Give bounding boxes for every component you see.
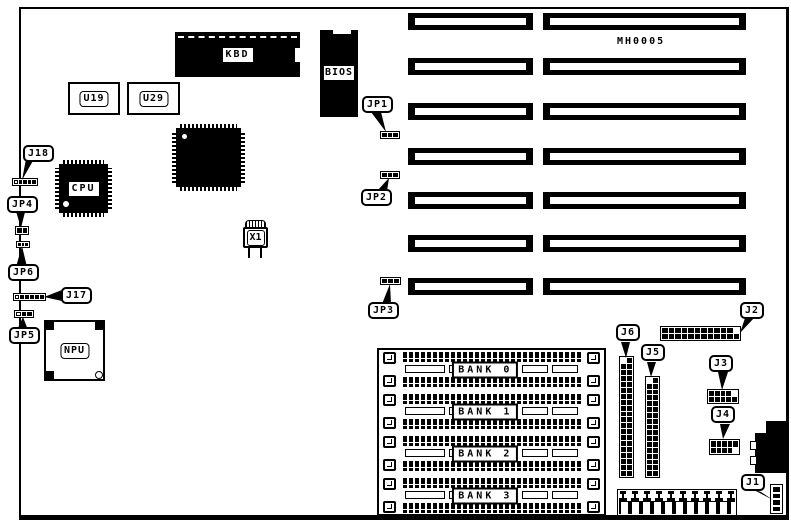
kbd-notch bbox=[295, 48, 300, 62]
jp2-callout-label: JP2 bbox=[361, 189, 392, 206]
bios-chip: BIOS bbox=[320, 30, 358, 117]
jp3-callout-label: JP3 bbox=[368, 302, 399, 319]
motherboard-diagram: MH0005 KBD BIOS U19 U29 CPU bbox=[0, 0, 791, 527]
jp5-callout-label: JP5 bbox=[9, 327, 40, 344]
connector-pin bbox=[621, 423, 626, 428]
simm-latch-icon bbox=[587, 436, 600, 448]
connector-pin bbox=[647, 390, 652, 395]
connector-pin bbox=[647, 413, 652, 418]
connector-pin bbox=[688, 334, 694, 339]
connector-pin bbox=[728, 448, 733, 454]
jp2-jumper bbox=[380, 171, 400, 179]
connector-pin bbox=[647, 401, 652, 406]
chipset-pins-right bbox=[241, 132, 245, 183]
connector-pin bbox=[701, 334, 707, 339]
crystal-leg bbox=[260, 248, 262, 258]
cpu-pins-bottom bbox=[63, 213, 104, 217]
isa-slot-segment-short bbox=[408, 192, 533, 209]
simm-latch-icon bbox=[587, 417, 600, 429]
simm-chip-box bbox=[552, 407, 578, 415]
connector-pin bbox=[653, 465, 658, 470]
connector-pin bbox=[653, 430, 658, 435]
simm-latch-icon bbox=[383, 501, 396, 513]
connector-pin bbox=[669, 334, 675, 339]
simm-latch-icon bbox=[383, 417, 396, 429]
jumper-pin bbox=[388, 173, 393, 177]
connector-pin bbox=[621, 417, 626, 422]
connector-pin bbox=[621, 465, 626, 470]
connector-pin bbox=[627, 417, 632, 422]
connector-pin bbox=[662, 334, 668, 339]
jumper-pin bbox=[35, 295, 39, 299]
power-socket-row bbox=[619, 501, 735, 514]
j2-callout-label: J2 bbox=[740, 302, 764, 319]
keyboard-din-connector bbox=[755, 433, 788, 473]
connector-pin bbox=[627, 406, 632, 411]
connector-pin bbox=[621, 406, 626, 411]
connector-pin bbox=[627, 459, 632, 464]
connector-pin bbox=[627, 423, 632, 428]
j3-connector bbox=[707, 389, 739, 404]
chipset-pins-bottom bbox=[180, 187, 237, 191]
isa-slot-segment-long bbox=[543, 103, 746, 120]
connector-pin bbox=[647, 419, 652, 424]
simm-chip-box bbox=[552, 449, 578, 457]
isa-slot-segment-long bbox=[543, 278, 746, 295]
connector-pin bbox=[621, 447, 626, 452]
crystal-x1: X1 bbox=[243, 227, 268, 248]
connector-pin bbox=[627, 471, 632, 476]
jumper-pin bbox=[18, 243, 21, 246]
connector-pin bbox=[653, 471, 658, 476]
memory-bank-1: BANK 1 bbox=[403, 394, 582, 429]
simm-chip-box bbox=[522, 449, 548, 457]
connector-pin bbox=[653, 378, 658, 383]
simm-latch-icon bbox=[587, 501, 600, 513]
connector-pin bbox=[688, 328, 694, 333]
simm-latch-icon bbox=[587, 394, 600, 406]
simm-latch-column-right bbox=[582, 350, 604, 514]
simm-latch-icon bbox=[587, 459, 600, 471]
connector-pin bbox=[773, 507, 780, 512]
j18-jumper bbox=[12, 178, 38, 186]
connector-pin bbox=[621, 459, 626, 464]
jp4-callout-label: JP4 bbox=[7, 196, 38, 213]
connector-pin bbox=[695, 334, 701, 339]
isa-slot-segment-short bbox=[408, 235, 533, 252]
bios-chip-label: BIOS bbox=[324, 66, 354, 80]
jumper-pin bbox=[382, 133, 387, 137]
connector-pin bbox=[669, 328, 675, 333]
jumper-pin bbox=[20, 295, 24, 299]
simm-latch-icon bbox=[383, 459, 396, 471]
isa-slot-segment-short bbox=[408, 58, 533, 75]
memory-bank-2: BANK 2 bbox=[403, 436, 582, 471]
board-model-text: MH0005 bbox=[617, 36, 665, 47]
isa-slot-segment-short bbox=[408, 278, 533, 295]
connector-pin bbox=[653, 395, 658, 400]
jumper-pin bbox=[23, 228, 28, 233]
simm-chip-box bbox=[405, 491, 445, 499]
connector-pin bbox=[621, 364, 626, 369]
j4-connector bbox=[709, 439, 740, 455]
jp6-callout-label: JP6 bbox=[8, 264, 39, 281]
jumper-pin bbox=[32, 180, 36, 184]
jumper-pin bbox=[382, 279, 387, 283]
kbd-chip-label: KBD bbox=[221, 47, 253, 63]
connector-pin bbox=[653, 413, 658, 418]
connector-pin bbox=[721, 397, 726, 402]
connector-pin bbox=[721, 334, 727, 339]
cpu-pins-right bbox=[108, 168, 112, 209]
isa-slot-segment-short bbox=[408, 103, 533, 120]
connector-pin bbox=[734, 334, 740, 339]
connector-pin bbox=[621, 376, 626, 381]
simm-socket-strip bbox=[403, 377, 582, 387]
connector-pin bbox=[708, 328, 714, 333]
jp4-jumper bbox=[15, 226, 29, 235]
connector-pin bbox=[732, 397, 737, 402]
connector-pin bbox=[647, 454, 652, 459]
x1-label: X1 bbox=[246, 230, 264, 246]
connector-pin bbox=[726, 397, 731, 402]
simm-latch-icon bbox=[587, 375, 600, 387]
connector-pin bbox=[627, 370, 632, 375]
simm-latch-icon bbox=[383, 436, 396, 448]
connector-pin bbox=[627, 441, 632, 446]
connector-pin bbox=[714, 328, 720, 333]
jumper-pin bbox=[394, 279, 399, 283]
jumper-pin bbox=[19, 180, 23, 184]
isa-slot-segment-long bbox=[543, 13, 746, 30]
connector-pin bbox=[714, 334, 720, 339]
connector-pin bbox=[734, 328, 740, 333]
chipset-chip bbox=[172, 124, 245, 191]
connector-pin bbox=[695, 328, 701, 333]
jumper-pin bbox=[382, 173, 387, 177]
connector-pin bbox=[722, 448, 727, 454]
connector-pin bbox=[647, 436, 652, 441]
jumper-pin bbox=[25, 243, 28, 246]
npu-chip-label: NPU bbox=[60, 343, 89, 359]
connector-pin bbox=[653, 436, 658, 441]
isa-slot-segment-long bbox=[543, 235, 746, 252]
simm-chip-box bbox=[405, 365, 445, 373]
connector-pin bbox=[653, 454, 658, 459]
connector-pin bbox=[653, 448, 658, 453]
cpu-pin1-dot bbox=[63, 201, 69, 207]
simm-socket-strip bbox=[403, 419, 582, 429]
connector-pin bbox=[621, 471, 626, 476]
connector-pin bbox=[675, 328, 681, 333]
simm-latch-icon bbox=[383, 394, 396, 406]
npu-socket: NPU bbox=[44, 320, 105, 381]
npu-pin1-circle bbox=[95, 371, 103, 379]
connector-pin bbox=[647, 407, 652, 412]
connector-pin bbox=[627, 400, 632, 405]
j6-callout-label: J6 bbox=[616, 324, 640, 341]
connector-pin bbox=[647, 384, 652, 389]
jumper-pin bbox=[27, 312, 32, 316]
simm-chip-box bbox=[552, 365, 578, 373]
connector-pin bbox=[647, 378, 652, 383]
j3-callout-label: J3 bbox=[709, 355, 733, 372]
connector-pin bbox=[717, 441, 722, 447]
simm-socket-strip bbox=[403, 461, 582, 471]
connector-pin bbox=[627, 447, 632, 452]
connector-pin bbox=[701, 328, 707, 333]
simm-chip-box bbox=[522, 407, 548, 415]
connector-pin bbox=[647, 430, 652, 435]
memory-bank-block: BANK 0 BANK 1 bbox=[377, 348, 606, 516]
simm-latch-icon bbox=[587, 352, 600, 364]
jumper-pin bbox=[388, 279, 393, 283]
connector-pin bbox=[621, 370, 626, 375]
connector-pin bbox=[717, 448, 722, 454]
simm-latch-icon bbox=[587, 478, 600, 490]
npu-corner-mark bbox=[95, 322, 103, 330]
connector-pin bbox=[647, 465, 652, 470]
jumper-pin bbox=[40, 295, 44, 299]
connector-pin bbox=[715, 397, 720, 402]
jumper-pin bbox=[393, 173, 398, 177]
connector-pin bbox=[627, 435, 632, 440]
j4-callout-label: J4 bbox=[711, 406, 735, 423]
connector-pin bbox=[662, 328, 668, 333]
bank-2-label: BANK 2 bbox=[452, 445, 518, 462]
connector-pin bbox=[647, 395, 652, 400]
connector-pin bbox=[653, 425, 658, 430]
npu-corner-mark bbox=[46, 322, 54, 330]
connector-pin bbox=[722, 441, 727, 447]
connector-pin bbox=[621, 382, 626, 387]
jp6-jumper bbox=[16, 241, 30, 248]
connector-pin bbox=[627, 412, 632, 417]
connector-pin bbox=[711, 441, 716, 447]
connector-pin bbox=[727, 328, 733, 333]
connector-pin bbox=[773, 487, 780, 492]
simm-chip-box bbox=[405, 407, 445, 415]
jumper-pin bbox=[14, 180, 18, 184]
jp5-jumper bbox=[14, 310, 34, 318]
npu-corner-mark bbox=[46, 371, 54, 379]
connector-pin bbox=[621, 412, 626, 417]
connector-pin bbox=[715, 391, 720, 396]
j6-connector bbox=[619, 356, 634, 478]
bank-1-label: BANK 1 bbox=[452, 403, 518, 420]
j2-connector bbox=[660, 326, 741, 341]
connector-pin bbox=[733, 441, 738, 447]
isa-slot-segment-short bbox=[408, 148, 533, 165]
connector-pin bbox=[627, 429, 632, 434]
kbd-chip: KBD bbox=[175, 32, 300, 77]
connector-pin bbox=[711, 448, 716, 454]
connector-pin bbox=[653, 390, 658, 395]
simm-chip-box bbox=[522, 491, 548, 499]
memory-bank-0: BANK 0 bbox=[403, 352, 582, 387]
simm-chip-box bbox=[552, 491, 578, 499]
jp3-jumper bbox=[380, 277, 401, 285]
connector-pin bbox=[773, 494, 780, 499]
jumper-pin bbox=[22, 312, 27, 316]
jumper-pin bbox=[16, 312, 21, 316]
connector-pin bbox=[709, 397, 714, 402]
connector-pin bbox=[675, 334, 681, 339]
connector-pin bbox=[653, 442, 658, 447]
connector-pin bbox=[627, 388, 632, 393]
bank-0-label: BANK 0 bbox=[452, 361, 518, 378]
u29-chip: U29 bbox=[127, 82, 180, 115]
connector-pin bbox=[721, 328, 727, 333]
jumper-pin bbox=[15, 295, 19, 299]
connector-pin bbox=[682, 334, 688, 339]
connector-pin bbox=[621, 388, 626, 393]
connector-pin bbox=[621, 394, 626, 399]
crystal-leg bbox=[248, 248, 250, 258]
connector-pin bbox=[647, 460, 652, 465]
u29-chip-label: U29 bbox=[139, 91, 168, 107]
connector-pin bbox=[627, 376, 632, 381]
connector-pin bbox=[647, 442, 652, 447]
jumper-pin bbox=[17, 228, 22, 233]
connector-pin bbox=[627, 364, 632, 369]
jumper-pin bbox=[25, 295, 29, 299]
connector-pin bbox=[733, 448, 738, 454]
connector-pin bbox=[621, 358, 626, 363]
isa-slot-segment-long bbox=[543, 192, 746, 209]
cpu-chip: CPU bbox=[55, 160, 112, 217]
simm-socket-strip bbox=[403, 503, 582, 513]
connector-pin bbox=[653, 419, 658, 424]
isa-slot-segment-long bbox=[543, 148, 746, 165]
connector-pin bbox=[653, 384, 658, 389]
connector-pin bbox=[627, 465, 632, 470]
connector-pin bbox=[621, 435, 626, 440]
connector-pin bbox=[653, 401, 658, 406]
connector-pin bbox=[627, 453, 632, 458]
bank-3-label: BANK 3 bbox=[452, 487, 518, 504]
connector-pin bbox=[621, 429, 626, 434]
jumper-pin bbox=[28, 180, 32, 184]
din-mount-tab bbox=[750, 456, 757, 465]
chipset-pin1-dot bbox=[182, 134, 187, 139]
connector-pin bbox=[621, 400, 626, 405]
kbd-dashed-line bbox=[178, 36, 297, 38]
j1-connector bbox=[770, 484, 783, 514]
connector-pin bbox=[682, 328, 688, 333]
connector-pin bbox=[627, 382, 632, 387]
connector-pin bbox=[627, 394, 632, 399]
jumper-pin bbox=[388, 133, 393, 137]
j1-callout-label: J1 bbox=[741, 474, 765, 491]
connector-pin bbox=[709, 391, 714, 396]
u19-chip: U19 bbox=[68, 82, 120, 115]
cpu-chip-label: CPU bbox=[68, 182, 98, 196]
j5-connector bbox=[645, 376, 660, 478]
simm-chip-box bbox=[522, 365, 548, 373]
simm-chip-box bbox=[405, 449, 445, 457]
simm-latch-icon bbox=[383, 352, 396, 364]
connector-pin bbox=[627, 358, 632, 363]
connector-pin bbox=[721, 391, 726, 396]
connector-pin bbox=[653, 407, 658, 412]
jumper-pin bbox=[30, 295, 34, 299]
memory-bank-inner: BANK 0 BANK 1 bbox=[379, 350, 604, 514]
connector-pin bbox=[647, 425, 652, 430]
bios-notch bbox=[333, 30, 351, 34]
simm-latch-icon bbox=[383, 478, 396, 490]
connector-pin bbox=[621, 441, 626, 446]
isa-slot-segment-short bbox=[408, 13, 533, 30]
j17-callout-label: J17 bbox=[61, 287, 92, 304]
power-connector bbox=[617, 489, 737, 516]
connector-pin bbox=[647, 448, 652, 453]
jp1-jumper bbox=[380, 131, 400, 139]
connector-pin bbox=[647, 471, 652, 476]
connector-pin bbox=[732, 391, 737, 396]
j5-callout-label: J5 bbox=[641, 344, 665, 361]
j17-jumper bbox=[13, 293, 46, 301]
u19-chip-label: U19 bbox=[79, 91, 108, 107]
connector-pin bbox=[726, 391, 731, 396]
simm-latch-icon bbox=[383, 375, 396, 387]
simm-latch-column-left bbox=[379, 350, 401, 514]
connector-pin bbox=[708, 334, 714, 339]
connector-pin bbox=[621, 453, 626, 458]
connector-pin bbox=[728, 441, 733, 447]
connector-pin bbox=[727, 334, 733, 339]
jumper-pin bbox=[23, 180, 27, 184]
din-mount-tab bbox=[750, 441, 757, 450]
connector-pin bbox=[773, 500, 780, 505]
jumper-pin bbox=[393, 133, 398, 137]
memory-bank-3: BANK 3 bbox=[403, 478, 582, 513]
isa-slot-segment-long bbox=[543, 58, 746, 75]
jp1-callout-label: JP1 bbox=[362, 96, 393, 113]
j18-callout-label: J18 bbox=[23, 145, 54, 162]
jumper-pin bbox=[22, 243, 25, 246]
connector-pin bbox=[653, 460, 658, 465]
